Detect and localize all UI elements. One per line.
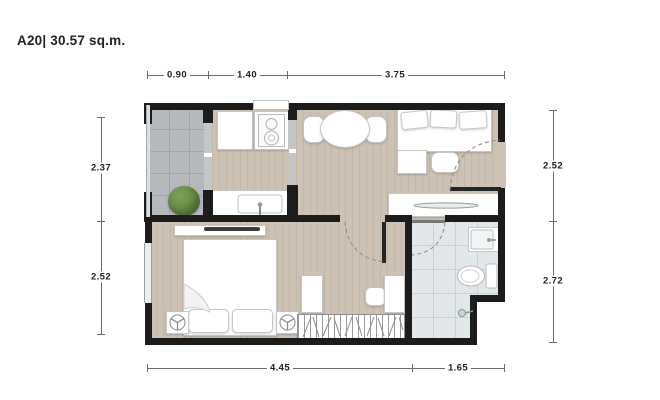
dim-label-left-1: 2.37	[88, 163, 114, 174]
dim-tick	[287, 71, 288, 79]
dim-tick	[97, 117, 105, 118]
sofa-chaise	[397, 150, 427, 174]
top-wall-duct	[253, 100, 289, 110]
dim-line-top	[147, 75, 504, 76]
ottoman	[431, 152, 459, 173]
desk	[384, 275, 405, 313]
nightstand-right	[276, 311, 299, 334]
dim-tick	[504, 364, 505, 372]
dim-label-bottom-2: 1.65	[445, 363, 471, 374]
balcony-railing	[146, 105, 150, 217]
wall-door-stub	[385, 215, 412, 222]
wall-right-upper	[498, 103, 505, 142]
dim-label-left-2: 2.52	[88, 272, 114, 283]
dim-tick	[208, 71, 209, 79]
exterior-notch	[477, 302, 513, 350]
sofa-pillow	[400, 110, 429, 131]
washbasin	[468, 227, 501, 252]
sofa-pillow	[430, 109, 458, 128]
dim-tick	[97, 221, 105, 222]
nightstand-left	[166, 311, 189, 334]
bathroom-door-leaf	[412, 220, 445, 223]
dining-table	[320, 110, 370, 148]
wall-top	[145, 103, 505, 110]
bed-pillow-right	[232, 309, 273, 333]
wall-bedroom-top	[145, 215, 340, 222]
dim-label-top-2: 1.40	[234, 70, 260, 81]
bedroom-window	[144, 243, 152, 303]
kitchen-sliding-partition	[289, 120, 296, 185]
dim-tick	[147, 364, 148, 372]
dim-tick	[147, 71, 148, 79]
wall-shelf-bar	[204, 227, 260, 231]
unit-title: A20| 30.57 sq.m.	[17, 33, 125, 48]
dim-line-left	[101, 117, 102, 334]
balcony-sliding-door	[204, 123, 212, 190]
bedroom-door-leaf	[382, 222, 386, 263]
wall-living-divider-bottom	[287, 185, 298, 222]
bed-pillow-left	[188, 309, 229, 333]
entrance-door-leaf	[450, 187, 501, 191]
dim-label-top-3: 3.75	[382, 70, 408, 81]
wall-right-lower	[498, 188, 505, 302]
wall-living-divider-top	[288, 103, 297, 120]
wall-bathroom-left	[405, 222, 412, 345]
tv-console	[388, 193, 500, 217]
dim-label-right-1: 2.52	[540, 161, 566, 172]
stove-panel	[258, 114, 285, 147]
dim-tick	[97, 334, 105, 335]
wardrobe	[297, 314, 405, 339]
dim-line-right	[553, 110, 554, 342]
wall-kitchen-divider-bottom	[203, 190, 213, 222]
sink-counter	[212, 190, 288, 216]
floor-plan-canvas: A20| 30.57 sq.m.	[0, 0, 660, 400]
dim-tick	[549, 110, 557, 111]
wall-bottom	[145, 338, 477, 345]
wall-bathroom-top	[445, 215, 505, 222]
dim-label-right-2: 2.72	[540, 276, 566, 287]
entrance-threshold	[498, 142, 506, 188]
kitchen-counter	[217, 111, 253, 150]
dim-tick	[412, 364, 413, 372]
stool	[365, 287, 386, 306]
dim-tick	[549, 342, 557, 343]
dim-label-top-1: 0.90	[164, 70, 190, 81]
dim-tick	[504, 71, 505, 79]
wall-notch-vertical	[470, 295, 477, 345]
dim-label-bottom-1: 4.45	[267, 363, 293, 374]
bedroom-cabinet	[301, 275, 323, 313]
plant-icon	[168, 186, 200, 216]
dim-tick	[549, 221, 557, 222]
sofa-pillow	[458, 110, 487, 130]
wall-kitchen-divider-top	[203, 103, 213, 123]
